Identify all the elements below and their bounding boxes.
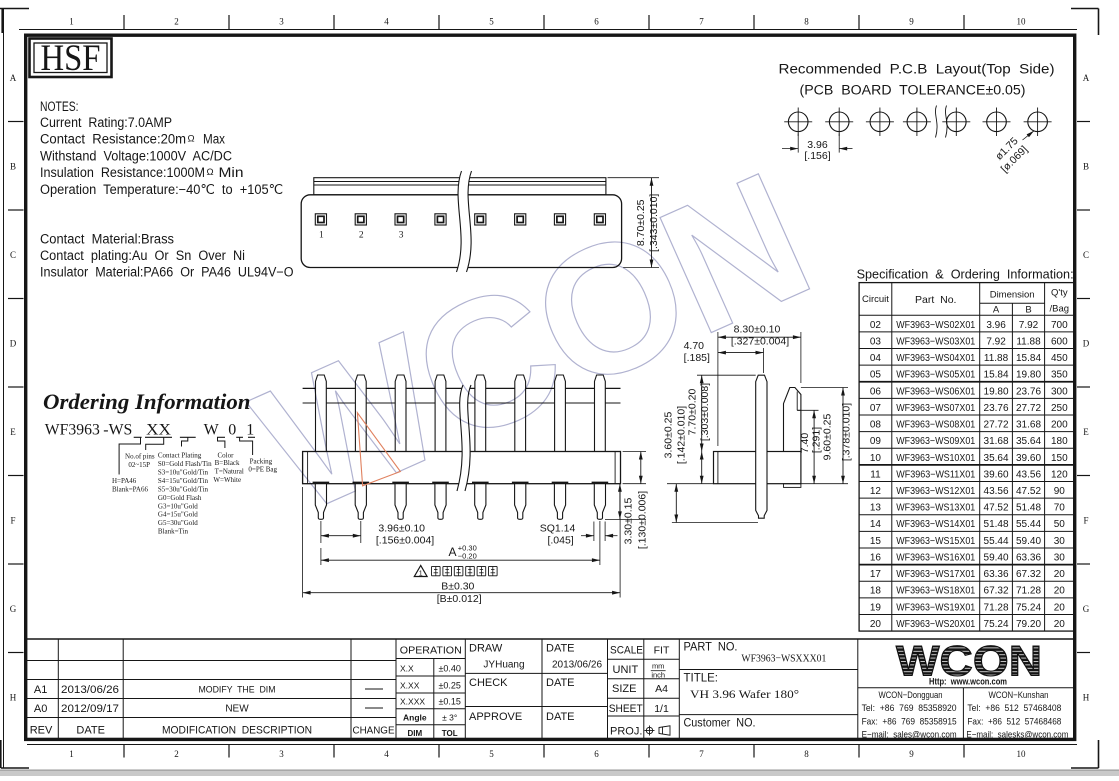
svg-text:WF3963−WS05X01: WF3963−WS05X01 (896, 370, 975, 381)
svg-text:67.32: 67.32 (1016, 569, 1041, 580)
svg-text:A: A (10, 73, 17, 83)
svg-text:79.20: 79.20 (1016, 619, 1041, 630)
svg-text:WF3963−WSXXX01: WF3963−WSXXX01 (741, 653, 826, 665)
svg-text:30: 30 (1054, 552, 1066, 563)
svg-text:2: 2 (174, 17, 179, 27)
svg-text:PROJ.: PROJ. (610, 726, 642, 738)
svg-text:B±0.30: B±0.30 (441, 580, 474, 592)
svg-text:FIT: FIT (654, 644, 670, 656)
svg-text:19.80: 19.80 (1016, 370, 1041, 381)
svg-text:[.045]: [.045] (547, 535, 573, 547)
svg-text:3.96±0.10: 3.96±0.10 (378, 523, 425, 535)
svg-text:09: 09 (870, 436, 882, 447)
svg-text:Max: Max (203, 132, 225, 147)
svg-text:S4=15u"Gold/Tin: S4=15u"Gold/Tin (158, 477, 209, 485)
svg-text:6: 6 (594, 17, 599, 27)
svg-text:31.68: 31.68 (984, 436, 1009, 447)
svg-text:55.44: 55.44 (1016, 519, 1041, 530)
svg-text:E: E (1083, 427, 1089, 437)
svg-text:H: H (10, 693, 17, 703)
svg-text:700: 700 (1051, 320, 1068, 331)
svg-text:Angle: Angle (403, 713, 427, 723)
svg-text:CHECK: CHECK (469, 677, 508, 689)
svg-text:NEW: NEW (225, 703, 249, 714)
svg-text:3.96: 3.96 (986, 320, 1006, 331)
svg-text:NOTES:: NOTES: (40, 99, 79, 114)
svg-text:59.40: 59.40 (1016, 536, 1041, 547)
svg-text:DATE: DATE (546, 643, 575, 655)
svg-text:Customer NO.: Customer NO. (684, 718, 756, 730)
svg-text:±0.15: ±0.15 (438, 696, 460, 706)
svg-text:51.48: 51.48 (984, 519, 1009, 530)
svg-text:WCON−Kunshan: WCON−Kunshan (989, 690, 1049, 700)
svg-text:S5=30u"Gold/Tin: S5=30u"Gold/Tin (158, 485, 209, 493)
svg-text:120: 120 (1051, 469, 1068, 480)
svg-text:Circuit: Circuit (862, 294, 889, 305)
svg-text:30: 30 (1054, 536, 1066, 547)
svg-text:WF3963−WS19X01: WF3963−WS19X01 (896, 602, 975, 613)
svg-text:0: 0 (228, 422, 236, 439)
svg-text:B: B (1025, 305, 1031, 316)
svg-text:7: 7 (699, 749, 704, 759)
svg-text:A: A (993, 305, 1000, 316)
svg-text:1: 1 (319, 231, 324, 241)
svg-text:A: A (449, 545, 457, 559)
svg-text:-WS: -WS (103, 422, 132, 439)
svg-text:16: 16 (870, 552, 882, 563)
svg-text:20: 20 (1054, 569, 1066, 580)
svg-text:71.28: 71.28 (984, 602, 1009, 613)
svg-text:15: 15 (870, 536, 882, 547)
svg-text:10: 10 (870, 453, 882, 464)
svg-text:Part No.: Part No. (915, 294, 956, 306)
svg-text:7.70±0.20: 7.70±0.20 (687, 389, 699, 436)
svg-text:±0.25: ±0.25 (438, 680, 460, 690)
svg-text:8: 8 (804, 749, 809, 759)
svg-text:75.24: 75.24 (984, 619, 1009, 630)
svg-text:[.156±0.004]: [.156±0.004] (376, 535, 434, 547)
svg-text:MODIFY THE DIM: MODIFY THE DIM (199, 684, 276, 695)
svg-text:WF3963−WS07X01: WF3963−WS07X01 (896, 403, 975, 414)
svg-text:±0.40: ±0.40 (438, 663, 460, 673)
svg-text:450: 450 (1051, 353, 1068, 364)
svg-text:JYHuang: JYHuang (483, 660, 524, 671)
svg-text:WF3963−WS16X01: WF3963−WS16X01 (896, 552, 975, 563)
svg-text:Specification & Ordering In: Specification & Ordering Information: (857, 267, 1074, 282)
svg-text:Packing: Packing (250, 458, 273, 466)
svg-text:A0: A0 (34, 703, 47, 715)
svg-text:07: 07 (870, 403, 882, 414)
svg-text:WF3963−WS03X01: WF3963−WS03X01 (896, 336, 975, 347)
svg-text:20: 20 (870, 619, 882, 630)
svg-text:2012/09/17: 2012/09/17 (61, 703, 119, 715)
svg-text:11: 11 (870, 469, 881, 480)
svg-text:1/1: 1/1 (654, 703, 669, 715)
svg-text:SCALE: SCALE (610, 645, 643, 657)
svg-text:47.52: 47.52 (1016, 486, 1041, 497)
svg-text:70: 70 (1054, 503, 1066, 514)
svg-text:6: 6 (594, 749, 599, 759)
svg-text:31.68: 31.68 (1016, 420, 1041, 431)
svg-text:VH 3.96 Wafer 180°: VH 3.96 Wafer 180° (690, 687, 799, 701)
svg-text:35.64: 35.64 (1016, 436, 1041, 447)
svg-text:1: 1 (69, 749, 74, 759)
svg-text:Contact Material:Brass: Contact Material:Brass (40, 232, 174, 247)
svg-text:05: 05 (870, 370, 882, 381)
svg-text:3: 3 (279, 749, 284, 759)
svg-text:WF3963−WS02X01: WF3963−WS02X01 (896, 320, 975, 331)
svg-text:WF3963−WS15X01: WF3963−WS15X01 (896, 536, 975, 547)
svg-text:F: F (1083, 516, 1088, 526)
svg-text:UNIT: UNIT (613, 664, 639, 676)
svg-text:WF3963−WS08X01: WF3963−WS08X01 (896, 420, 975, 431)
svg-text:13: 13 (870, 503, 882, 514)
svg-text:23.76: 23.76 (984, 403, 1009, 414)
svg-text:B: B (1083, 162, 1089, 172)
svg-text:XX: XX (146, 422, 171, 439)
svg-text:Blank=PA66: Blank=PA66 (112, 486, 148, 494)
svg-text:E: E (10, 427, 16, 437)
svg-text:Insulation Resistance:1000M: Insulation Resistance:1000M (40, 165, 205, 180)
svg-text:75.24: 75.24 (1016, 602, 1041, 613)
svg-text:WF3963−WS09X01: WF3963−WS09X01 (896, 436, 975, 447)
svg-text:Ordering Information: Ordering Information (43, 389, 251, 414)
svg-text:G5=30u"Gold: G5=30u"Gold (158, 519, 198, 527)
svg-text:Tel: +86 512 57468408: Tel: +86 512 57468408 (967, 703, 1061, 713)
svg-text:5: 5 (489, 17, 494, 27)
svg-text:WF3963−WS06X01: WF3963−WS06X01 (896, 386, 975, 397)
svg-text:[.156]: [.156] (804, 150, 830, 162)
svg-text:43.56: 43.56 (984, 486, 1009, 497)
svg-text:WF3963−WS17X01: WF3963−WS17X01 (896, 569, 975, 580)
svg-text:2013/06/26: 2013/06/26 (552, 660, 602, 671)
svg-text:E−mail: salesks@wcon.com: E−mail: salesks@wcon.com (966, 729, 1068, 739)
svg-text:Ω: Ω (207, 167, 214, 178)
svg-text:B=Black: B=Black (215, 459, 240, 467)
svg-text:10: 10 (1017, 17, 1027, 27)
svg-text:WF3963−WS18X01: WF3963−WS18X01 (896, 586, 975, 597)
svg-text:12: 12 (870, 486, 882, 497)
svg-text:WF3963−WS11X01: WF3963−WS11X01 (896, 469, 975, 480)
svg-text:inch: inch (651, 671, 665, 680)
svg-text:S3=10u"Gold/Tin: S3=10u"Gold/Tin (158, 468, 209, 476)
svg-text:3: 3 (399, 231, 404, 241)
svg-text:63.36: 63.36 (984, 569, 1009, 580)
svg-text:19: 19 (870, 602, 882, 613)
svg-text:2: 2 (359, 231, 364, 241)
svg-text:[.303±0.008]: [.303±0.008] (699, 383, 711, 441)
svg-text:200: 200 (1051, 420, 1068, 431)
svg-text:X.XXX: X.XXX (400, 696, 425, 706)
svg-text:19.80: 19.80 (984, 386, 1009, 397)
svg-text:G0=Gold Flash: G0=Gold Flash (158, 494, 202, 502)
svg-text:55.44: 55.44 (984, 536, 1009, 547)
svg-text:7.40: 7.40 (799, 433, 811, 454)
svg-text:E−mail: sales@wcon.com: E−mail: sales@wcon.com (862, 729, 957, 739)
svg-text:SIZE: SIZE (612, 683, 636, 695)
svg-text:20: 20 (1054, 586, 1066, 597)
svg-text:9.60±0.25: 9.60±0.25 (822, 414, 834, 461)
svg-text:APPROVE: APPROVE (469, 711, 522, 723)
svg-text:Tel: +86 769 85358920: Tel: +86 769 85358920 (862, 703, 957, 713)
svg-text:04: 04 (870, 353, 882, 364)
svg-text:−0.20: −0.20 (458, 551, 477, 560)
svg-text:PART NO.: PART NO. (684, 642, 738, 654)
svg-text:DIM: DIM (407, 729, 422, 738)
svg-text:G: G (1083, 604, 1090, 614)
svg-text:18: 18 (870, 586, 882, 597)
svg-text:03: 03 (870, 336, 882, 347)
svg-text:7.92: 7.92 (1019, 320, 1039, 331)
svg-text:G: G (10, 604, 17, 614)
svg-text:27.72: 27.72 (984, 420, 1009, 431)
svg-text:/Bag: /Bag (1050, 304, 1070, 315)
svg-text:7.92: 7.92 (986, 336, 1006, 347)
svg-text:3.60±0.25: 3.60±0.25 (663, 412, 675, 459)
svg-text:11.88: 11.88 (1016, 336, 1041, 347)
svg-text:180: 180 (1051, 436, 1068, 447)
svg-text:SQ1.14: SQ1.14 (540, 523, 576, 535)
svg-text:DATE: DATE (546, 677, 575, 689)
svg-text:7: 7 (699, 17, 704, 27)
svg-text:WF3963−WS14X01: WF3963−WS14X01 (896, 519, 975, 530)
svg-text:SHEET: SHEET (609, 703, 643, 715)
svg-text:OPERATION: OPERATION (400, 644, 462, 656)
svg-text:Dimension: Dimension (990, 290, 1035, 301)
svg-text:H: H (1083, 693, 1090, 703)
svg-text:67.32: 67.32 (984, 586, 1009, 597)
svg-text:06: 06 (870, 386, 882, 397)
svg-text:Recommended P.C.B Layout(Top: Recommended P.C.B Layout(Top Side) (779, 62, 1055, 78)
svg-text:11.88: 11.88 (984, 353, 1009, 364)
svg-text:Ω: Ω (188, 134, 195, 145)
svg-text:0=PE Bag: 0=PE Bag (248, 466, 277, 474)
svg-text:8: 8 (804, 17, 809, 27)
svg-text:WCON−Dongguan: WCON−Dongguan (879, 690, 943, 700)
svg-text:No.of pins: No.of pins (125, 453, 155, 461)
svg-text:WF3963−WS04X01: WF3963−WS04X01 (896, 353, 975, 364)
svg-text:350: 350 (1051, 370, 1068, 381)
svg-text:WF3963−WS12X01: WF3963−WS12X01 (896, 486, 975, 497)
svg-text:90: 90 (1054, 486, 1066, 497)
svg-text:Fax: +86 512 57468468: Fax: +86 512 57468468 (967, 717, 1061, 727)
svg-text:mm: mm (652, 662, 665, 671)
svg-text:WF3963: WF3963 (45, 422, 100, 439)
svg-text:Http: www.wcon.com: Http: www.wcon.com (929, 677, 1007, 687)
svg-text:51.48: 51.48 (1016, 503, 1041, 514)
svg-text:DATE: DATE (76, 725, 105, 737)
svg-text:Insulator Material:PA66 Or: Insulator Material:PA66 Or PA46 UL94V−O (40, 265, 294, 280)
svg-text:D: D (10, 339, 17, 349)
svg-text:[.130±0.006]: [.130±0.006] (637, 491, 649, 549)
svg-text:3.30±0.15: 3.30±0.15 (623, 498, 635, 545)
svg-text:[B±0.012]: [B±0.012] (437, 593, 482, 605)
svg-text:S0=Gold Flash/Tin: S0=Gold Flash/Tin (158, 460, 212, 468)
svg-text:4: 4 (384, 749, 389, 759)
svg-text:Contact Plating: Contact Plating (158, 452, 202, 460)
svg-text:47.52: 47.52 (984, 503, 1009, 514)
svg-text:C: C (1083, 250, 1089, 260)
svg-text:H=PA46: H=PA46 (112, 477, 137, 485)
svg-text:W=White: W=White (213, 476, 241, 484)
svg-text:63.36: 63.36 (1016, 552, 1041, 563)
svg-text:9: 9 (909, 17, 914, 27)
svg-text:08: 08 (870, 420, 882, 431)
svg-text:Current Rating:7.0AMP: Current Rating:7.0AMP (40, 115, 172, 130)
svg-text:600: 600 (1051, 336, 1068, 347)
svg-text:DATE: DATE (546, 711, 575, 723)
svg-text:MODIFICATION DESCRIPTION: MODIFICATION DESCRIPTION (162, 725, 312, 737)
svg-text:20: 20 (1054, 619, 1066, 630)
svg-text:G3=10u"Gold: G3=10u"Gold (158, 502, 198, 510)
svg-text:1: 1 (69, 17, 74, 27)
svg-text:Blank=Tin: Blank=Tin (158, 528, 189, 536)
svg-text:A1: A1 (34, 684, 47, 696)
svg-text:TOL: TOL (442, 729, 458, 738)
svg-text:B: B (10, 162, 16, 172)
svg-text:4: 4 (384, 17, 389, 27)
svg-text:39.60: 39.60 (984, 469, 1009, 480)
svg-text:20: 20 (1054, 602, 1066, 613)
svg-text:W: W (204, 422, 220, 439)
svg-text:15.84: 15.84 (1016, 353, 1041, 364)
svg-text:02~15P: 02~15P (128, 461, 150, 469)
svg-text:15.84: 15.84 (984, 370, 1009, 381)
svg-text:71.28: 71.28 (1016, 586, 1041, 597)
svg-text:1: 1 (419, 570, 423, 577)
svg-text:2013/06/26: 2013/06/26 (61, 684, 119, 696)
svg-text:17: 17 (870, 569, 882, 580)
svg-text:(PCB BOARD TOLERANCE±0.05): (PCB BOARD TOLERANCE±0.05) (800, 83, 1026, 99)
svg-text:50: 50 (1054, 519, 1066, 530)
svg-text:Min: Min (219, 165, 244, 180)
svg-text:10: 10 (1017, 749, 1027, 759)
svg-text:WF3963−WS20X01: WF3963−WS20X01 (896, 619, 975, 630)
svg-text:3: 3 (279, 17, 284, 27)
svg-text:X.X: X.X (400, 663, 414, 673)
svg-text:D: D (1083, 339, 1090, 349)
svg-text:F: F (10, 516, 15, 526)
svg-text:Contact plating:Au Or Sn O: Contact plating:Au Or Sn Over Ni (40, 248, 245, 263)
svg-text:43.56: 43.56 (1016, 469, 1041, 480)
svg-text:35.64: 35.64 (984, 453, 1009, 464)
svg-text:C: C (10, 250, 16, 260)
svg-text:5: 5 (489, 749, 494, 759)
svg-text:TITLE:: TITLE: (684, 673, 719, 685)
svg-text:14: 14 (870, 519, 882, 530)
svg-text:WF3963−WS10X01: WF3963−WS10X01 (896, 453, 975, 464)
svg-text:Q'ty: Q'ty (1051, 288, 1068, 299)
svg-text:G4=15u"Gold: G4=15u"Gold (158, 511, 198, 519)
svg-text:Fax: +86 769 85358915: Fax: +86 769 85358915 (862, 717, 957, 727)
svg-text:02: 02 (870, 320, 882, 331)
svg-text:Contact Resistance:20m: Contact Resistance:20m (40, 132, 186, 147)
svg-text:WF3963−WS13X01: WF3963−WS13X01 (896, 503, 975, 514)
svg-text:HSF: HSF (41, 38, 101, 79)
svg-text:A: A (1083, 73, 1090, 83)
svg-text:Withstand Voltage:1000V AC/D: Withstand Voltage:1000V AC/DC (40, 149, 232, 164)
svg-text:59.40: 59.40 (984, 552, 1009, 563)
svg-text:9: 9 (909, 749, 914, 759)
svg-text:39.60: 39.60 (1016, 453, 1041, 464)
svg-text:± 3°: ± 3° (442, 713, 457, 723)
svg-text:2: 2 (174, 749, 179, 759)
svg-text:A4: A4 (655, 683, 668, 695)
svg-text:150: 150 (1051, 453, 1068, 464)
svg-text:REV: REV (30, 725, 53, 737)
svg-text:Operation Temperature:−40℃ t: Operation Temperature:−40℃ to +105℃ (40, 182, 283, 197)
svg-text:300: 300 (1051, 386, 1068, 397)
svg-text:CHANGE: CHANGE (353, 725, 395, 737)
svg-text:1: 1 (246, 422, 254, 439)
svg-text:250: 250 (1051, 403, 1068, 414)
svg-text:23.76: 23.76 (1016, 386, 1041, 397)
svg-text:T=Natural: T=Natural (215, 468, 244, 476)
svg-text:27.72: 27.72 (1016, 403, 1041, 414)
svg-text:X.XX: X.XX (400, 680, 420, 690)
svg-text:DRAW: DRAW (469, 643, 503, 655)
svg-text:[.378±0.010]: [.378±0.010] (840, 403, 852, 461)
